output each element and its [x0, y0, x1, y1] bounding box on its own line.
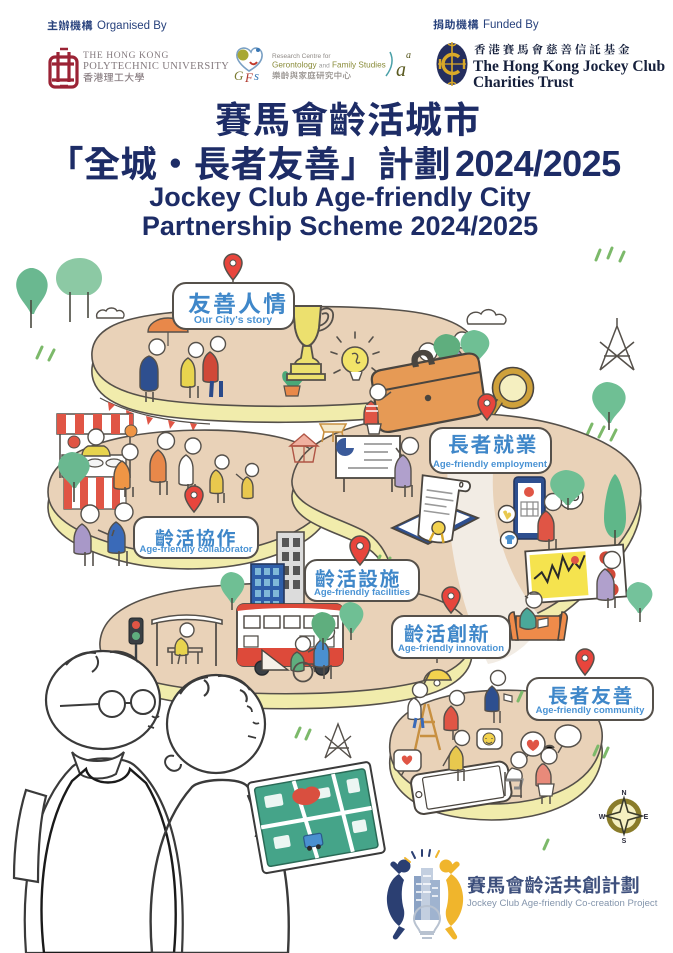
svg-text:S: S: [622, 838, 627, 845]
svg-text:Organised By: Organised By: [97, 20, 167, 32]
svg-text:Jockey Club Age-friendly City: Jockey Club Age-friendly City: [149, 182, 531, 212]
svg-text:Age-friendly facilities: Age-friendly facilities: [314, 587, 410, 598]
svg-text:Age-friendly community: Age-friendly community: [536, 705, 645, 716]
svg-text:Age-friendly employment: Age-friendly employment: [433, 459, 548, 470]
svg-text:The Hong Kong Jockey Club: The Hong Kong Jockey Club: [473, 58, 665, 75]
svg-text:Gerontology and Family Studies: Gerontology and Family Studies: [272, 61, 386, 70]
svg-text:N: N: [621, 790, 626, 797]
svg-text:s: s: [254, 68, 259, 83]
svg-text:Jockey Club Age-friendly Co-cr: Jockey Club Age-friendly Co-creation Pro…: [467, 898, 658, 909]
svg-text:THE HONG KONG: THE HONG KONG: [83, 51, 169, 61]
svg-text:Partnership Scheme 2024/2025: Partnership Scheme 2024/2025: [142, 211, 538, 241]
svg-text:F: F: [244, 70, 254, 85]
svg-text:G: G: [234, 68, 244, 83]
svg-text:Age-friendly collaborator: Age-friendly collaborator: [140, 544, 253, 555]
svg-text:Our City's story: Our City's story: [194, 314, 273, 326]
svg-text:a: a: [406, 50, 411, 61]
svg-text:Funded By: Funded By: [483, 19, 539, 31]
svg-text:POLYTECHNIC UNIVERSITY: POLYTECHNIC UNIVERSITY: [83, 61, 229, 72]
svg-text:Charities Trust: Charities Trust: [473, 74, 574, 91]
svg-text:E: E: [644, 814, 649, 821]
svg-text:Research Centre for: Research Centre for: [272, 53, 331, 60]
svg-text:2024/2025: 2024/2025: [455, 143, 621, 184]
svg-text:a: a: [396, 59, 406, 81]
svg-text:Age-friendly innovation: Age-friendly innovation: [398, 643, 504, 654]
svg-text:W: W: [599, 814, 606, 821]
